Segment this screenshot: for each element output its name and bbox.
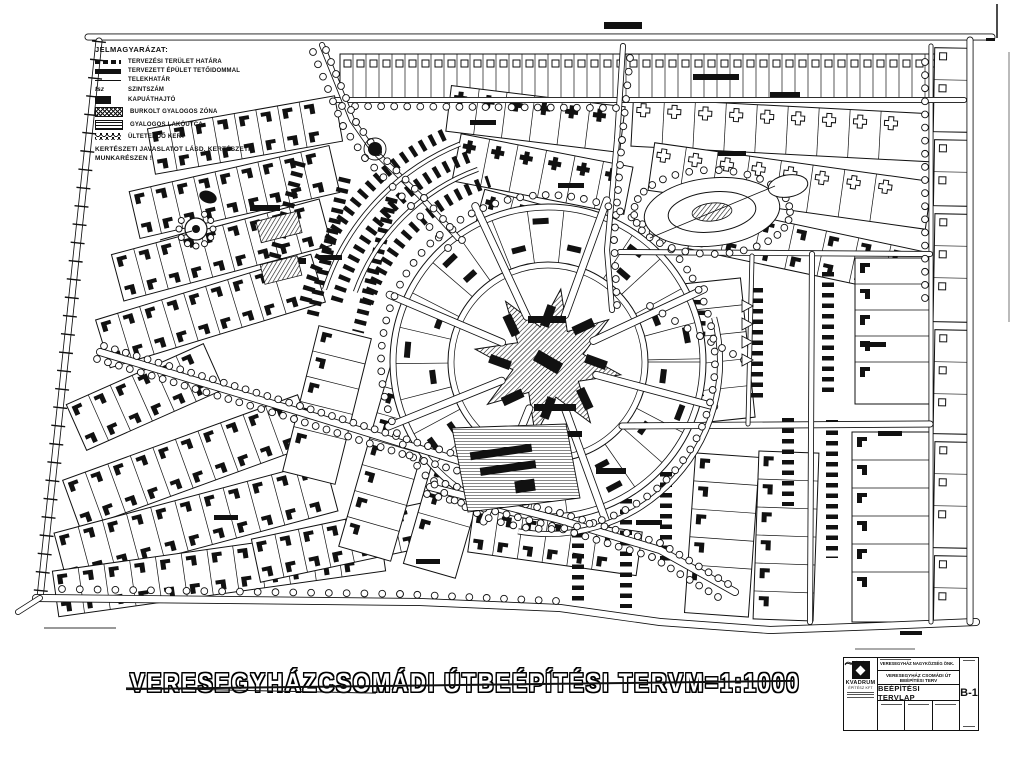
signature-cell bbox=[905, 701, 932, 730]
project-cells: VERESEGYHÁZ NAGYKÖZSÉG ÖNK. VERESEGYHÁZ … bbox=[878, 658, 960, 730]
pedestrian-street-symbol bbox=[95, 120, 123, 130]
title-block: KVADRUM ÉPÍTÉSZ KFT VERESEGYHÁZ NAGYKÖZS… bbox=[843, 657, 979, 731]
title-town: VERESEGYHÁZ bbox=[130, 668, 318, 699]
microtext-line bbox=[908, 704, 929, 705]
legend-item: TERVEZETT ÉPÜLET TETŐIDOMMAL bbox=[95, 68, 315, 74]
signature-cell bbox=[933, 701, 959, 730]
sheet-name-cell: BEÉPÍTÉSI TERVLAP bbox=[878, 685, 959, 701]
drawing-number: B-1 bbox=[960, 661, 978, 724]
legend-note: KERTÉSZETI JAVASLATOT LÁSD. KERTÉSZETI M… bbox=[95, 146, 315, 164]
garden-symbol bbox=[95, 133, 121, 140]
microtext-line bbox=[847, 692, 873, 693]
corner-microtext bbox=[44, 627, 116, 629]
microtext-line bbox=[881, 704, 902, 705]
legend-item: TERVEZÉSI TERÜLET HATÁRA bbox=[95, 59, 315, 65]
legend-item: GYALOGOS LAKÓUTCA bbox=[95, 120, 315, 130]
microtext-line bbox=[847, 697, 873, 698]
client-cell: VERESEGYHÁZ NAGYKÖZSÉG ÖNK. bbox=[878, 658, 959, 671]
microtext-line bbox=[847, 694, 873, 695]
gateway-symbol bbox=[95, 96, 111, 104]
legend-item: fsz SZINTSZÁM bbox=[95, 86, 315, 93]
boundary-symbol bbox=[95, 60, 121, 64]
microtext-line bbox=[963, 726, 976, 727]
company-subtitle: ÉPÍTÉSZ KFT bbox=[848, 686, 872, 690]
legend: JELMAGYARÁZAT: TERVEZÉSI TERÜLET HATÁRA … bbox=[95, 45, 315, 164]
legend-item: ÜLTETENDŐ KERT bbox=[95, 133, 315, 140]
building-symbol bbox=[95, 69, 121, 74]
title-scale: M=1:1000 bbox=[685, 668, 801, 699]
plot-line-symbol bbox=[95, 80, 121, 81]
paved-zone-symbol bbox=[95, 107, 123, 117]
microtext-line bbox=[935, 704, 956, 705]
signature-cell bbox=[878, 701, 905, 730]
legend-item: TELEKHATÁR bbox=[95, 77, 315, 83]
corner-microtext bbox=[855, 648, 915, 650]
signature-row bbox=[878, 701, 959, 730]
legend-title: JELMAGYARÁZAT: bbox=[95, 45, 315, 54]
legend-item: BURKOLT GYALOGOS ZÓNA bbox=[95, 107, 315, 117]
drawing-sheet: JELMAGYARÁZAT: TERVEZÉSI TERÜLET HATÁRA … bbox=[0, 0, 1024, 767]
signature-icon bbox=[844, 658, 866, 668]
secondary-centre bbox=[452, 424, 580, 512]
drawing-number-cell: B-1 bbox=[960, 658, 978, 730]
scan-artifacts bbox=[986, 4, 1010, 322]
storey-symbol: fsz bbox=[95, 86, 121, 93]
microtext-line bbox=[880, 659, 911, 660]
legend-item: KAPUÁTHAJTÓ bbox=[95, 96, 315, 104]
company-cell: KVADRUM ÉPÍTÉSZ KFT bbox=[844, 658, 878, 730]
client-name: VERESEGYHÁZ NAGYKÖZSÉG ÖNK. bbox=[880, 661, 957, 666]
